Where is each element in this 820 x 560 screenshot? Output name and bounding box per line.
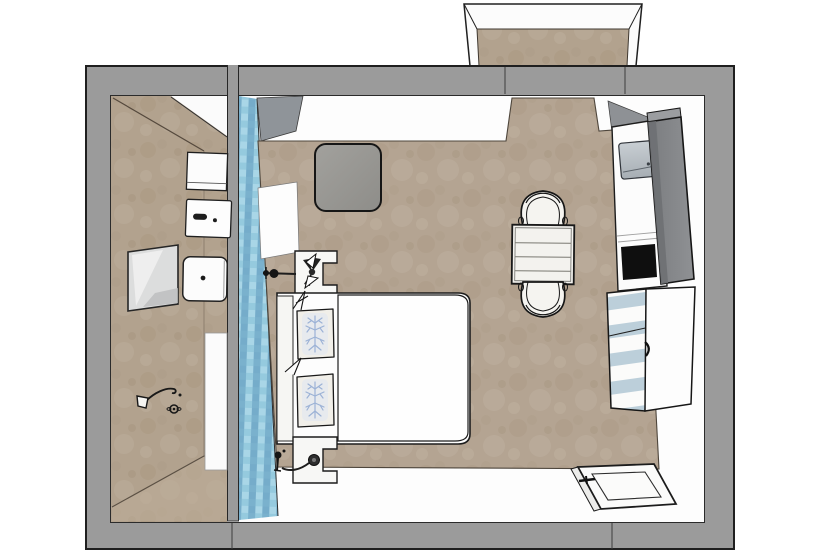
room-interior	[110, 95, 705, 523]
floorplan	[0, 0, 820, 560]
balcony	[464, 4, 642, 66]
divider-wall	[227, 65, 239, 521]
